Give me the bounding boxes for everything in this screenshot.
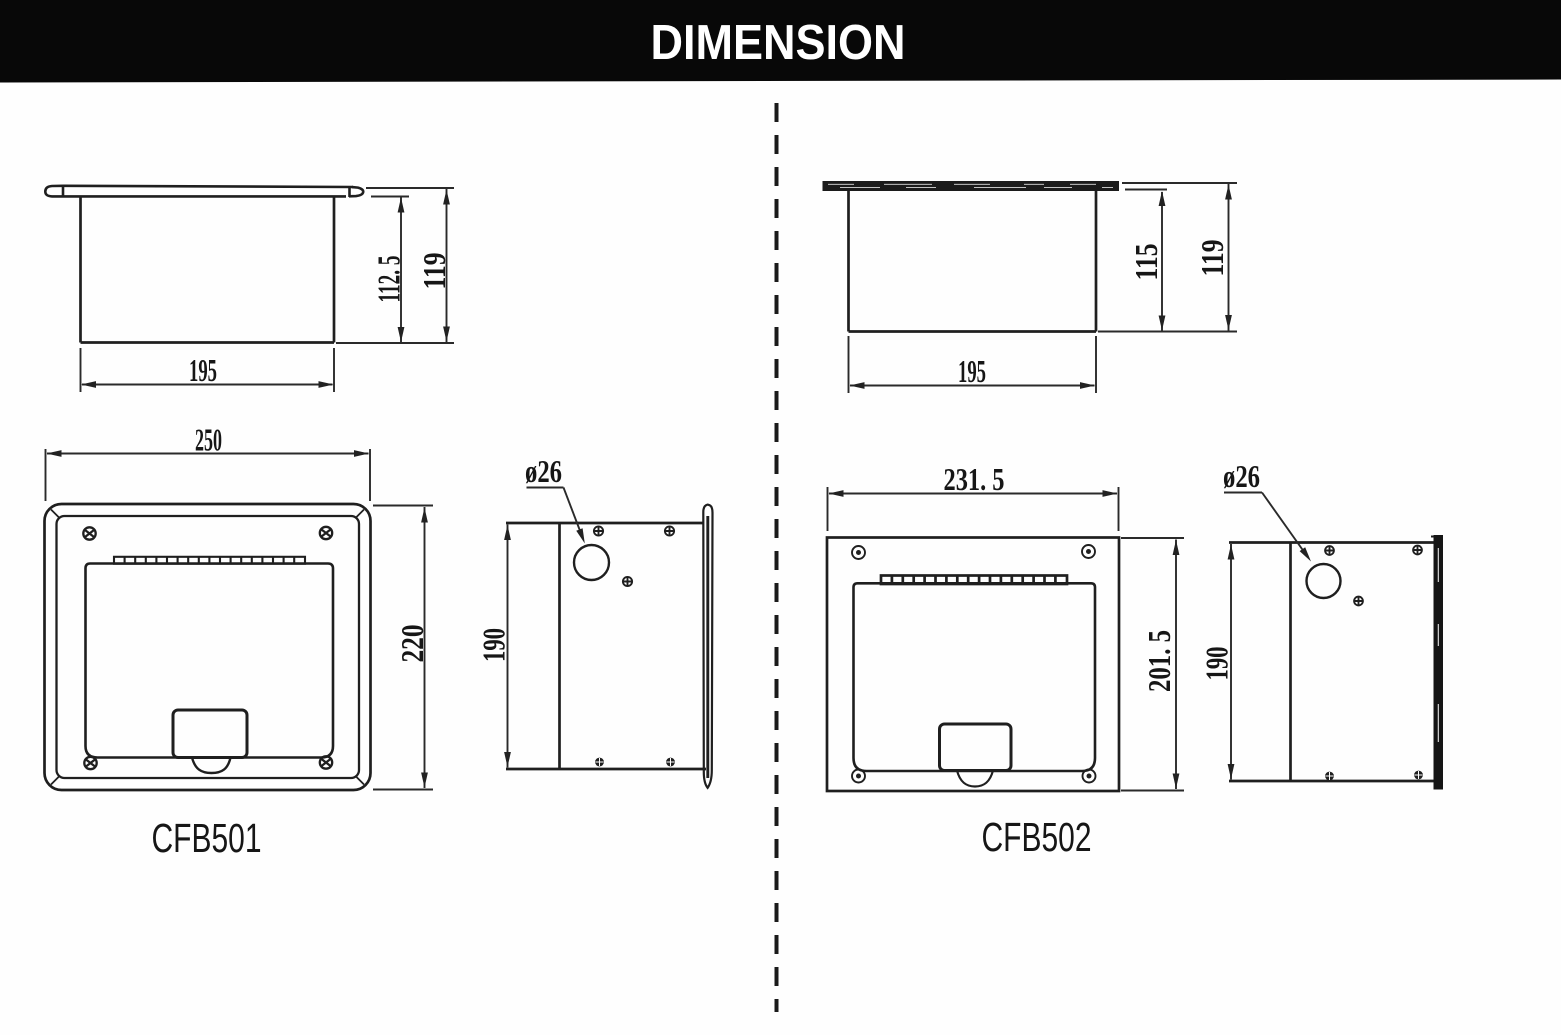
svg-text:190: 190	[476, 628, 512, 662]
svg-text:201. 5: 201. 5	[1141, 630, 1177, 692]
svg-text:CFB501: CFB501	[152, 815, 262, 861]
svg-text:195: 195	[189, 352, 217, 388]
svg-text:115: 115	[1128, 244, 1164, 281]
svg-text:119: 119	[1194, 240, 1230, 277]
svg-text:119: 119	[416, 253, 452, 290]
svg-text:220: 220	[394, 625, 430, 663]
svg-text:195: 195	[958, 353, 986, 389]
svg-text:DIMENSION: DIMENSION	[651, 16, 906, 70]
svg-text:ø26: ø26	[525, 453, 562, 489]
svg-text:ø26: ø26	[1223, 458, 1260, 494]
svg-text:190: 190	[1199, 647, 1235, 681]
svg-text:112. 5: 112. 5	[371, 256, 407, 303]
svg-text:231. 5: 231. 5	[944, 461, 1005, 497]
svg-text:250: 250	[195, 422, 222, 458]
svg-text:CFB502: CFB502	[982, 814, 1092, 860]
